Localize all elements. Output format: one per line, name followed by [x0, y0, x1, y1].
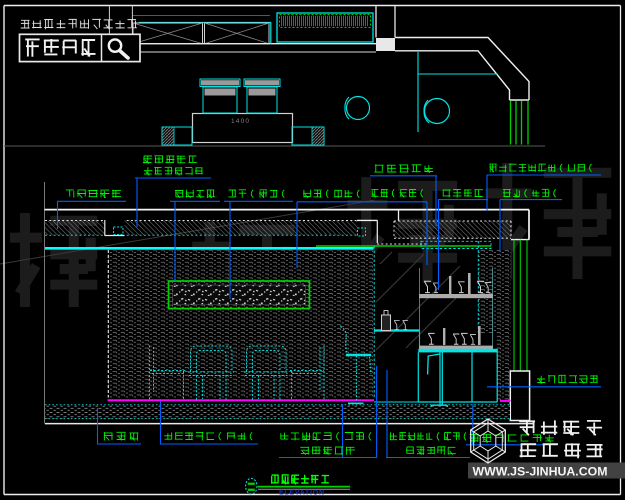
svg-text:1400: 1400 [231, 118, 249, 125]
svg-text:WWW.JS-JINHUA.COM: WWW.JS-JINHUA.COM [473, 467, 608, 479]
svg-text:ELEVATION: ELEVATION [279, 490, 324, 497]
